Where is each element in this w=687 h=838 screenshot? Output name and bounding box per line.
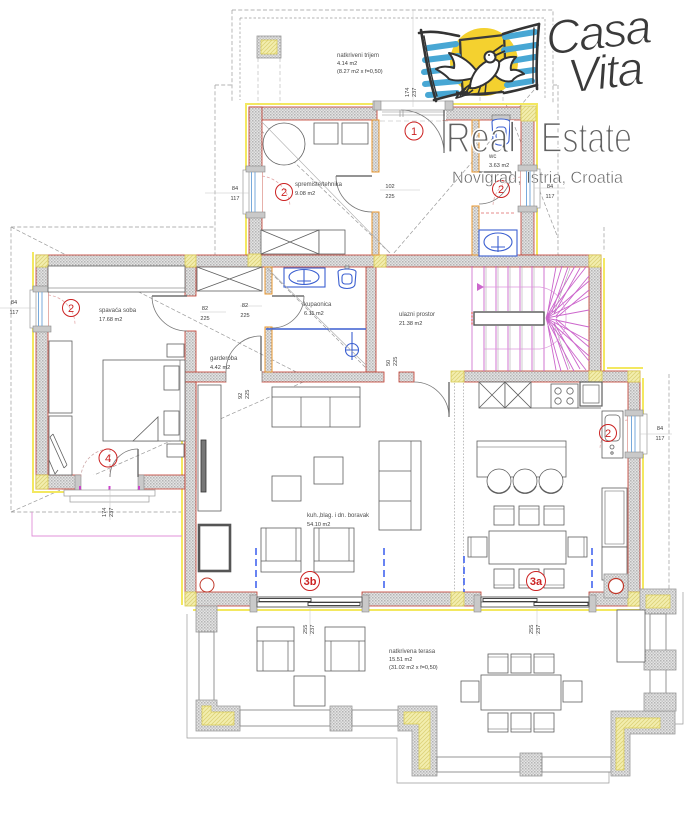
svg-text:4: 4 <box>105 453 111 465</box>
svg-text:natkriveni trijem: natkriveni trijem <box>337 53 379 59</box>
svg-text:237: 237 <box>412 88 418 97</box>
svg-text:117: 117 <box>231 196 240 202</box>
svg-text:2: 2 <box>281 187 287 199</box>
svg-text:237: 237 <box>310 625 316 634</box>
svg-text:6.11 m2: 6.11 m2 <box>304 311 324 317</box>
svg-text:kupaonica: kupaonica <box>304 302 332 308</box>
svg-text:17.68 m2: 17.68 m2 <box>99 317 122 323</box>
svg-text:225: 225 <box>240 313 249 319</box>
svg-text:2: 2 <box>68 303 74 315</box>
svg-text:Real: Real <box>446 114 516 162</box>
svg-text:9.08 m2: 9.08 m2 <box>295 191 315 197</box>
svg-text:225: 225 <box>200 316 209 322</box>
svg-text:21.38 m2: 21.38 m2 <box>399 321 422 327</box>
svg-text:(8.27 m2 x f=0,50): (8.27 m2 x f=0,50) <box>337 69 383 75</box>
svg-text:spremište/tehnika: spremište/tehnika <box>295 182 343 188</box>
svg-text:3b: 3b <box>304 576 317 588</box>
svg-text:225: 225 <box>393 357 399 366</box>
svg-text:50: 50 <box>386 360 392 366</box>
svg-text:1: 1 <box>411 126 417 138</box>
svg-text:84: 84 <box>657 426 663 432</box>
svg-text:4.42 m2: 4.42 m2 <box>210 365 230 371</box>
svg-text:15.51 m2: 15.51 m2 <box>389 657 412 663</box>
svg-text:117: 117 <box>546 194 555 200</box>
svg-text:3a: 3a <box>530 576 543 588</box>
svg-text:2: 2 <box>605 428 611 440</box>
svg-text:117: 117 <box>10 310 19 316</box>
svg-text:ulazni prostor: ulazni prostor <box>399 312 435 318</box>
svg-text:Estate: Estate <box>541 114 632 162</box>
svg-text:84: 84 <box>232 186 238 192</box>
svg-text:237: 237 <box>536 625 542 634</box>
svg-text:84: 84 <box>11 300 17 306</box>
svg-text:garderoba: garderoba <box>210 356 238 362</box>
svg-text:spavaća soba: spavaća soba <box>99 308 137 314</box>
svg-text:102: 102 <box>385 184 394 190</box>
svg-text:natkrivena terasa: natkrivena terasa <box>389 649 436 655</box>
svg-text:54.10 m2: 54.10 m2 <box>307 522 330 528</box>
svg-text:225: 225 <box>245 390 251 399</box>
svg-text:117: 117 <box>656 436 665 442</box>
svg-text:82: 82 <box>202 306 208 312</box>
svg-text:82: 82 <box>242 303 248 309</box>
svg-text:174: 174 <box>102 508 108 517</box>
svg-text:255: 255 <box>303 625 309 634</box>
svg-text:(31.02 m2 x f=0,50): (31.02 m2 x f=0,50) <box>389 665 438 671</box>
svg-text:237: 237 <box>109 508 115 517</box>
svg-text:255: 255 <box>529 625 535 634</box>
svg-text:Vita: Vita <box>565 42 646 104</box>
svg-text:174: 174 <box>405 88 411 97</box>
svg-text:92: 92 <box>238 393 244 399</box>
svg-text:Novigrad, Istria, Croatia: Novigrad, Istria, Croatia <box>452 168 624 187</box>
svg-text:kuh.,blag. i dn. boravak: kuh.,blag. i dn. boravak <box>307 513 370 519</box>
svg-text:225: 225 <box>385 194 394 200</box>
svg-text:4.14 m2: 4.14 m2 <box>337 61 357 67</box>
